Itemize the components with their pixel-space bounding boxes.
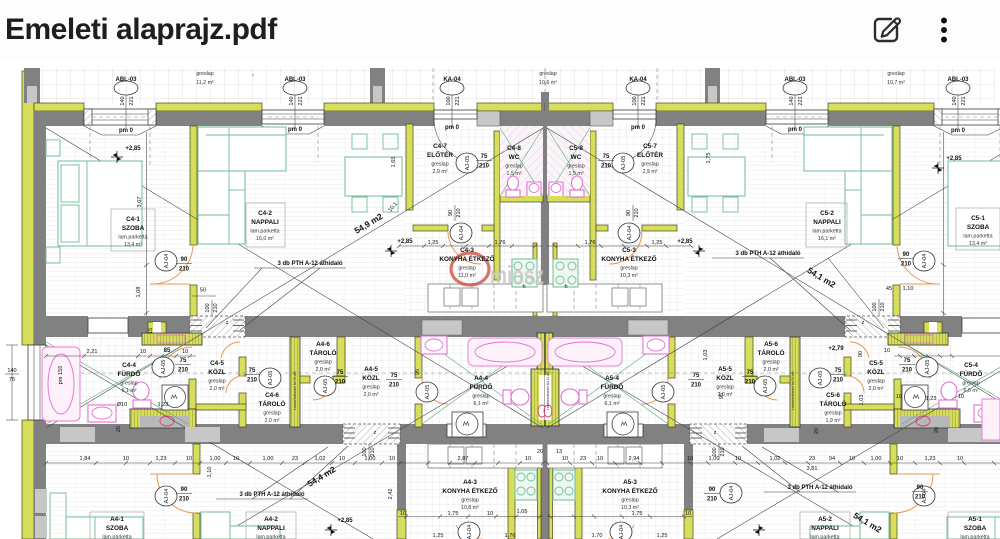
svg-text:A5-4: A5-4 — [605, 375, 619, 382]
svg-text:1,84: 1,84 — [80, 456, 91, 462]
svg-text:210: 210 — [213, 303, 219, 312]
svg-text:greslap: greslap — [120, 381, 137, 387]
svg-text:210: 210 — [601, 164, 612, 170]
svg-text:210: 210 — [707, 497, 718, 503]
svg-text:1,23: 1,23 — [925, 456, 936, 462]
svg-text:miosz: miosz — [490, 260, 544, 290]
svg-text:20: 20 — [116, 426, 122, 432]
svg-text:1,02: 1,02 — [770, 456, 781, 462]
svg-text:SZOBA: SZOBA — [967, 224, 990, 231]
svg-text:10: 10 — [687, 456, 693, 462]
svg-text:greslap: greslap — [505, 164, 522, 170]
svg-text:75: 75 — [249, 368, 256, 374]
svg-text:90: 90 — [858, 351, 864, 357]
svg-text:A4-3: A4-3 — [463, 479, 477, 486]
svg-text:greslap: greslap — [867, 379, 884, 385]
svg-text:greslap: greslap — [472, 394, 489, 400]
svg-text:1,25: 1,25 — [652, 240, 663, 246]
svg-text:greslap: greslap — [263, 411, 280, 417]
svg-text:C4-2: C4-2 — [258, 210, 272, 217]
svg-text:100: 100 — [205, 303, 211, 312]
svg-text:lam.parketta: lam.parketta — [810, 535, 839, 539]
svg-text:C4-5: C4-5 — [210, 360, 224, 367]
svg-text:1,08: 1,08 — [136, 287, 142, 298]
svg-text:C5-5: C5-5 — [869, 360, 883, 367]
svg-text:C5-8: C5-8 — [569, 145, 583, 152]
svg-text:KONYHA ÉTKEZŐ: KONYHA ÉTKEZŐ — [442, 486, 497, 495]
svg-text:NAPPALI: NAPPALI — [257, 525, 285, 532]
svg-text:13,4 m²: 13,4 m² — [969, 241, 987, 247]
svg-text:greslap: greslap — [567, 164, 584, 170]
svg-text:C4-7: C4-7 — [433, 143, 447, 150]
svg-text:16,0 m²: 16,0 m² — [256, 236, 274, 242]
svg-text:10: 10 — [685, 511, 691, 517]
svg-text:10: 10 — [487, 511, 493, 517]
svg-text:AJ-04: AJ-04 — [729, 486, 735, 501]
svg-text:C5-2: C5-2 — [820, 210, 834, 217]
svg-text:1,23: 1,23 — [926, 396, 937, 402]
svg-text:greslap: greslap — [362, 385, 379, 391]
svg-text:210: 210 — [479, 164, 490, 170]
svg-text:C4-4: C4-4 — [122, 362, 136, 369]
svg-text:23: 23 — [580, 456, 586, 462]
svg-text:WC: WC — [571, 154, 582, 161]
svg-text:20: 20 — [934, 427, 940, 433]
svg-text:z: z — [374, 430, 377, 436]
svg-text:210: 210 — [720, 447, 726, 456]
svg-text:221: 221 — [455, 96, 461, 105]
svg-text:1,5 m²: 1,5 m² — [506, 171, 521, 177]
svg-text:2,0 m²: 2,0 m² — [868, 386, 883, 392]
svg-text:lam.parketta: lam.parketta — [118, 235, 147, 241]
svg-text:75: 75 — [481, 154, 488, 160]
svg-text:221: 221 — [641, 96, 647, 105]
svg-text:10: 10 — [958, 394, 964, 400]
svg-text:210: 210 — [880, 302, 886, 311]
svg-text:100: 100 — [712, 447, 718, 456]
svg-text:pm 0: pm 0 — [445, 125, 460, 131]
svg-text:1,02: 1,02 — [315, 456, 326, 462]
svg-text:210: 210 — [902, 368, 913, 374]
svg-text:2,42: 2,42 — [388, 489, 394, 500]
svg-text:greslap: greslap — [620, 266, 637, 272]
svg-text:1,9 m²: 1,9 m² — [825, 418, 840, 424]
svg-text:+2,79: +2,79 — [828, 346, 844, 352]
svg-text:23: 23 — [809, 456, 815, 462]
svg-text:75: 75 — [835, 368, 842, 374]
svg-text:greslap: greslap — [887, 71, 904, 77]
svg-text:2,87: 2,87 — [458, 456, 469, 462]
svg-text:6,1 m²: 6,1 m² — [604, 401, 619, 407]
svg-text:140: 140 — [789, 96, 795, 105]
svg-text:AJ-05: AJ-05 — [763, 379, 769, 394]
svg-text:KÖZL: KÖZL — [867, 367, 884, 376]
svg-text:140: 140 — [7, 368, 16, 374]
svg-text:TÁROLÓ: TÁROLÓ — [758, 348, 785, 357]
svg-text:+2,85: +2,85 — [946, 156, 962, 162]
svg-text:100: 100 — [872, 302, 878, 311]
svg-text:greslap: greslap — [762, 360, 779, 366]
svg-text:1,70: 1,70 — [592, 533, 603, 539]
svg-text:AJ-05: AJ-05 — [621, 156, 627, 171]
svg-text:Lakáselválasztó fal 51 dB: Lakáselválasztó fal 51 dB — [546, 371, 550, 410]
svg-text:3,07: 3,07 — [137, 197, 143, 208]
svg-text:C5-7: C5-7 — [643, 143, 657, 150]
svg-text:z: z — [714, 430, 717, 436]
svg-text:greslap: greslap — [314, 360, 331, 366]
svg-text:AJ-04: AJ-04 — [619, 525, 625, 539]
svg-text:75: 75 — [747, 370, 754, 376]
svg-text:10: 10 — [400, 511, 406, 517]
svg-text:pm 0: pm 0 — [951, 128, 966, 134]
svg-text:140: 140 — [952, 96, 958, 105]
svg-text:TÁROLÓ: TÁROLÓ — [259, 399, 286, 408]
svg-text:10: 10 — [897, 456, 903, 462]
svg-text:A4-4: A4-4 — [474, 375, 488, 382]
svg-text:100: 100 — [632, 96, 638, 105]
svg-text:2,9 m²: 2,9 m² — [642, 169, 657, 175]
svg-text:2,0 m²: 2,0 m² — [763, 367, 778, 373]
svg-text:greslap: greslap — [621, 498, 638, 504]
svg-text:221: 221 — [798, 96, 804, 105]
svg-text:2,9 m²: 2,9 m² — [432, 169, 447, 175]
svg-text:A5-5: A5-5 — [718, 366, 732, 373]
svg-text:↑: ↑ — [252, 73, 255, 79]
svg-text:greslap: greslap — [962, 381, 979, 387]
svg-text:NAPPALI: NAPPALI — [813, 219, 841, 226]
svg-text:greslap: greslap — [196, 71, 213, 77]
svg-text:greslap: greslap — [208, 379, 225, 385]
svg-text:2,0 m²: 2,0 m² — [363, 392, 378, 398]
svg-text:95: 95 — [415, 369, 421, 375]
svg-text:AJ-04: AJ-04 — [922, 254, 928, 269]
svg-text:KÖZL: KÖZL — [716, 373, 733, 382]
svg-text:KONYHA ÉTKEZŐ: KONYHA ÉTKEZŐ — [601, 254, 656, 263]
svg-text:+2,85: +2,85 — [125, 146, 141, 152]
svg-text:greslap: greslap — [716, 385, 733, 391]
svg-text:10: 10 — [957, 456, 963, 462]
svg-text:AJ-04: AJ-04 — [922, 489, 928, 504]
svg-text:+2,85: +2,85 — [397, 239, 413, 245]
svg-text:6,1 m²: 6,1 m² — [121, 388, 136, 394]
svg-text:NAPPALI: NAPPALI — [251, 219, 279, 226]
svg-text:lam.parketta: lam.parketta — [960, 535, 989, 539]
svg-text:2,0 m²: 2,0 m² — [264, 418, 279, 424]
svg-text:A5-1: A5-1 — [968, 516, 982, 523]
svg-text:90: 90 — [626, 210, 632, 216]
svg-text:AJ-05: AJ-05 — [818, 371, 824, 386]
svg-text:C4-8: C4-8 — [507, 145, 521, 152]
svg-text:10: 10 — [896, 394, 902, 400]
svg-text:AJ-05: AJ-05 — [268, 371, 274, 386]
svg-text:3 db PTH A-12 áthidaló: 3 db PTH A-12 áthidaló — [735, 251, 800, 257]
svg-text:1,10: 1,10 — [903, 286, 914, 292]
svg-text:10: 10 — [182, 349, 188, 355]
svg-text:1,05: 1,05 — [517, 509, 528, 515]
svg-text:13: 13 — [556, 449, 562, 455]
svg-text:1,25: 1,25 — [657, 533, 668, 539]
svg-text:10,7 m²: 10,7 m² — [887, 80, 905, 86]
svg-text:+2,85: +2,85 — [337, 518, 353, 524]
svg-text:75: 75 — [180, 358, 187, 364]
svg-text:13,4 m²: 13,4 m² — [124, 242, 142, 248]
svg-text:1,5 m²: 1,5 m² — [568, 171, 583, 177]
svg-text:210: 210 — [745, 380, 756, 386]
svg-text:90: 90 — [448, 210, 454, 216]
svg-text:lam.parketta: lam.parketta — [102, 535, 131, 539]
svg-text:210: 210 — [389, 383, 400, 389]
svg-text:greslap: greslap — [461, 498, 478, 504]
svg-text:1,03: 1,03 — [703, 350, 709, 361]
svg-text:1,76: 1,76 — [585, 240, 596, 246]
svg-text:10: 10 — [884, 348, 890, 354]
svg-text:100: 100 — [446, 96, 452, 105]
svg-text:10: 10 — [735, 456, 741, 462]
svg-text:TÁROLÓ: TÁROLÓ — [310, 348, 337, 357]
svg-text:10: 10 — [123, 456, 129, 462]
svg-text:210: 210 — [833, 378, 844, 384]
svg-text:1,65: 1,65 — [391, 157, 397, 168]
svg-text:1,23: 1,23 — [158, 402, 169, 408]
svg-text:pm 0: pm 0 — [288, 127, 303, 133]
svg-text:210: 210 — [178, 368, 189, 374]
svg-text:10: 10 — [140, 349, 146, 355]
svg-text:85: 85 — [164, 348, 171, 354]
svg-text:AJ-04: AJ-04 — [627, 226, 633, 241]
svg-text:SZOBA: SZOBA — [106, 525, 129, 532]
svg-text:75: 75 — [904, 358, 911, 364]
svg-text:10: 10 — [597, 456, 603, 462]
svg-text:15: 15 — [148, 328, 154, 334]
svg-text:1,10: 1,10 — [207, 467, 213, 478]
svg-text:A4-5: A4-5 — [364, 366, 378, 373]
svg-text:10: 10 — [525, 456, 531, 462]
svg-text:+2,85: +2,85 — [677, 239, 693, 245]
svg-text:lam.parketta: lam.parketta — [250, 229, 279, 235]
svg-text:11,0 m²: 11,0 m² — [458, 273, 476, 279]
svg-text:AJ-04: AJ-04 — [467, 525, 473, 539]
svg-text:95: 95 — [719, 393, 725, 399]
svg-text:75: 75 — [9, 377, 15, 383]
svg-text:ELŐTÉR: ELŐTÉR — [637, 150, 663, 159]
svg-text:221: 221 — [298, 96, 304, 105]
svg-text:45: 45 — [886, 286, 892, 292]
svg-text:1,76: 1,76 — [505, 533, 516, 539]
svg-text:pm 0: pm 0 — [631, 125, 646, 131]
svg-text:WC: WC — [509, 154, 520, 161]
svg-text:90: 90 — [903, 252, 910, 258]
svg-text:10: 10 — [233, 456, 239, 462]
svg-text:210: 210 — [691, 383, 702, 389]
svg-text:AJ-04: AJ-04 — [459, 226, 465, 241]
svg-text:10: 10 — [389, 456, 395, 462]
svg-text:90: 90 — [181, 487, 188, 493]
svg-text:6,1 m²: 6,1 m² — [473, 401, 488, 407]
svg-text:C4-3: C4-3 — [460, 247, 474, 254]
svg-text:pm 0: pm 0 — [788, 127, 803, 133]
svg-text:TÁROLÓ: TÁROLÓ — [820, 399, 847, 408]
svg-text:1,25: 1,25 — [428, 240, 439, 246]
svg-text:SZOBA: SZOBA — [964, 525, 987, 532]
svg-text:1,75: 1,75 — [448, 511, 459, 517]
svg-text:AJ-05: AJ-05 — [661, 385, 667, 400]
svg-text:1,25: 1,25 — [433, 533, 444, 539]
svg-text:10,6 m²: 10,6 m² — [539, 80, 557, 86]
svg-text:AJ-05: AJ-05 — [925, 360, 931, 375]
svg-text:210: 210 — [335, 380, 346, 386]
svg-text:1,75: 1,75 — [632, 511, 643, 517]
svg-text:90: 90 — [181, 257, 188, 263]
svg-text:AJ-05: AJ-05 — [161, 360, 167, 375]
svg-text:140: 140 — [120, 96, 126, 105]
svg-text:1,00: 1,00 — [210, 456, 221, 462]
svg-text:AJ-05: AJ-05 — [425, 385, 431, 400]
svg-text:1,00: 1,00 — [263, 456, 274, 462]
svg-text:lam.parketta: lam.parketta — [812, 229, 841, 235]
svg-text:50: 50 — [200, 288, 206, 294]
svg-text:1,00: 1,00 — [871, 456, 882, 462]
svg-text:FÜRDŐ: FÜRDŐ — [601, 382, 624, 391]
svg-text:A5-6: A5-6 — [764, 341, 778, 348]
svg-text:greslap: greslap — [641, 162, 658, 168]
svg-text:z: z — [226, 320, 229, 326]
svg-text:2,21: 2,21 — [87, 349, 98, 355]
svg-text:greslap: greslap — [458, 266, 475, 272]
svg-text:2,0 m²: 2,0 m² — [209, 386, 224, 392]
svg-text:10: 10 — [562, 456, 568, 462]
svg-text:94: 94 — [829, 456, 835, 462]
svg-text:1,23: 1,23 — [156, 456, 167, 462]
svg-text:1,76: 1,76 — [495, 240, 506, 246]
svg-text:A4-1: A4-1 — [110, 516, 124, 523]
svg-text:10,3 m²: 10,3 m² — [620, 273, 638, 279]
svg-text:C5-4: C5-4 — [964, 362, 978, 369]
svg-text:75: 75 — [337, 370, 344, 376]
svg-text:FÜRDŐ: FÜRDŐ — [960, 369, 983, 378]
svg-text:AJ-04: AJ-04 — [164, 254, 170, 269]
svg-text:210: 210 — [179, 497, 190, 503]
svg-text:3 db PTH A-12 áthidaló: 3 db PTH A-12 áthidaló — [239, 492, 304, 498]
svg-text:1,03: 1,03 — [859, 395, 865, 406]
svg-text:A5-3: A5-3 — [623, 479, 637, 486]
svg-text:C5-6: C5-6 — [826, 392, 840, 399]
svg-text:1,75: 1,75 — [706, 153, 712, 164]
svg-text:C5-1: C5-1 — [971, 215, 985, 222]
svg-text:Lakáselválasztó fal 51 dB: Lakáselválasztó fal 51 dB — [791, 371, 795, 410]
svg-text:lam.parketta: lam.parketta — [963, 234, 992, 240]
svg-text:NAPPALI: NAPPALI — [811, 525, 839, 532]
svg-text:AJ-05: AJ-05 — [465, 156, 471, 171]
svg-text:221: 221 — [129, 96, 135, 105]
svg-text:210: 210 — [901, 262, 912, 268]
svg-text:FÜRDŐ: FÜRDŐ — [118, 369, 141, 378]
svg-text:221: 221 — [961, 96, 967, 105]
svg-text:10,8 m²: 10,8 m² — [461, 505, 479, 511]
svg-text:140: 140 — [289, 96, 295, 105]
svg-text:210: 210 — [370, 447, 376, 456]
svg-text:AJ-04: AJ-04 — [164, 489, 170, 504]
svg-text:10: 10 — [186, 456, 192, 462]
svg-text:greslap: greslap — [824, 411, 841, 417]
svg-text:h: h — [564, 284, 567, 290]
svg-text:KÖZL: KÖZL — [362, 373, 379, 382]
svg-text:C5-3: C5-3 — [622, 247, 636, 254]
svg-text:pm 0: pm 0 — [119, 128, 134, 134]
svg-text:210: 210 — [456, 208, 462, 217]
svg-text:A4-6: A4-6 — [316, 341, 330, 348]
svg-text:16,1 m²: 16,1 m² — [818, 236, 836, 242]
svg-text:C4-1: C4-1 — [126, 216, 140, 223]
svg-text:2,94: 2,94 — [629, 456, 640, 462]
svg-text:Ø10: Ø10 — [117, 402, 128, 408]
svg-text:210: 210 — [247, 378, 258, 384]
svg-text:10: 10 — [339, 456, 345, 462]
svg-text:pm 155: pm 155 — [58, 366, 64, 385]
svg-text:210: 210 — [634, 208, 640, 217]
svg-text:lam.parketta: lam.parketta — [256, 535, 285, 539]
svg-text:3 db PTH A-12 áthidaló: 3 db PTH A-12 áthidaló — [277, 261, 342, 267]
svg-text:3,81: 3,81 — [807, 466, 818, 472]
svg-text:11,2 m²: 11,2 m² — [196, 80, 214, 86]
svg-text:greslap: greslap — [431, 162, 448, 168]
svg-text:75: 75 — [603, 154, 610, 160]
svg-text:A5-2: A5-2 — [818, 516, 832, 523]
svg-text:SZOBA: SZOBA — [122, 225, 145, 232]
svg-text:75: 75 — [391, 373, 398, 379]
svg-text:ELŐTÉR: ELŐTÉR — [427, 150, 453, 159]
svg-text:h: h — [522, 284, 525, 290]
svg-text:KÖZL: KÖZL — [208, 367, 225, 376]
svg-text:10: 10 — [849, 456, 855, 462]
svg-text:20: 20 — [814, 428, 820, 434]
svg-text:90: 90 — [709, 487, 716, 493]
svg-text:75: 75 — [693, 373, 700, 379]
svg-text:20: 20 — [537, 449, 543, 455]
svg-text:greslap: greslap — [539, 71, 556, 77]
svg-text:greslap: greslap — [603, 394, 620, 400]
svg-text:KONYHA ÉTKEZŐ: KONYHA ÉTKEZŐ — [602, 486, 657, 495]
svg-text:FÜRDŐ: FÜRDŐ — [470, 382, 493, 391]
svg-text:6,0 m²: 6,0 m² — [963, 388, 978, 394]
svg-text:C4-6: C4-6 — [265, 392, 279, 399]
svg-text:KONYHA ÉTKEZŐ: KONYHA ÉTKEZŐ — [439, 254, 494, 263]
svg-text:Lakáselválasztó fal 51 dB: Lakáselválasztó fal 51 dB — [293, 371, 297, 410]
svg-text:23: 23 — [292, 456, 298, 462]
svg-text:210: 210 — [179, 267, 190, 273]
svg-text:A4-2: A4-2 — [264, 516, 278, 523]
svg-text:100: 100 — [362, 447, 368, 456]
svg-text:2,0 m²: 2,0 m² — [315, 367, 330, 373]
svg-text:AJ-05: AJ-05 — [323, 379, 329, 394]
svg-text:z: z — [862, 320, 865, 326]
